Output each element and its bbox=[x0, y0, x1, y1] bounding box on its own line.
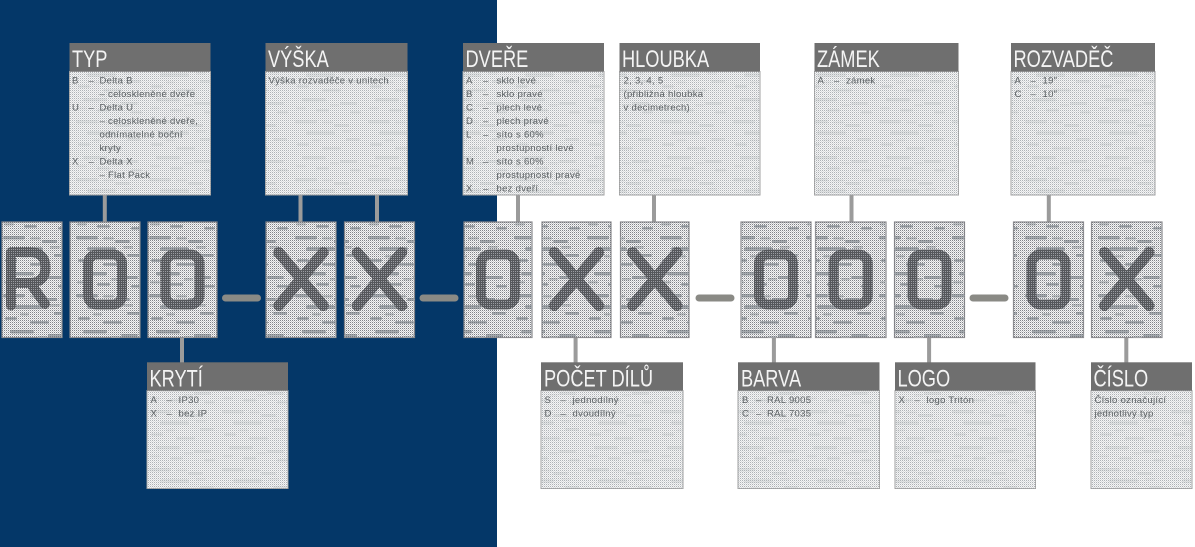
svg-text:D: D bbox=[545, 409, 552, 420]
svg-text:X: X bbox=[899, 395, 906, 406]
svg-text:plech pravé: plech pravé bbox=[497, 116, 549, 127]
svg-text:–: – bbox=[167, 395, 173, 406]
svg-text:–: – bbox=[561, 409, 567, 420]
svg-text:POČET DÍLŮ: POČET DÍLŮ bbox=[544, 364, 653, 392]
svg-text:VÝŠKA: VÝŠKA bbox=[268, 44, 329, 72]
svg-text:C: C bbox=[742, 409, 749, 420]
svg-text:– Flat Pack: – Flat Pack bbox=[100, 170, 151, 181]
svg-text:L: L bbox=[466, 130, 472, 141]
svg-text:ČÍSLO: ČÍSLO bbox=[1094, 364, 1149, 392]
svg-text:jednodílný: jednodílný bbox=[572, 395, 619, 406]
svg-text:– celoskleněné dveře: – celoskleněné dveře bbox=[100, 89, 196, 100]
svg-text:C: C bbox=[1015, 89, 1022, 100]
svg-text:–: – bbox=[167, 409, 173, 420]
svg-text:U: U bbox=[72, 103, 79, 114]
svg-text:D: D bbox=[466, 116, 473, 127]
svg-text:–: – bbox=[483, 184, 489, 195]
svg-text:RAL 7035: RAL 7035 bbox=[767, 409, 811, 420]
svg-text:sklo pravé: sklo pravé bbox=[497, 89, 543, 100]
svg-text:10″: 10″ bbox=[1043, 89, 1058, 100]
svg-text:A: A bbox=[818, 76, 825, 87]
svg-text:–: – bbox=[483, 157, 489, 168]
svg-text:B: B bbox=[72, 76, 79, 87]
svg-text:–: – bbox=[483, 130, 489, 141]
svg-text:TYP: TYP bbox=[72, 46, 107, 73]
svg-text:plech levé: plech levé bbox=[497, 103, 543, 114]
svg-text:X: X bbox=[72, 157, 79, 168]
svg-text:A: A bbox=[1015, 76, 1022, 87]
svg-text:–: – bbox=[756, 409, 762, 420]
svg-text:IP30: IP30 bbox=[179, 395, 200, 406]
svg-text:2, 3, 4, 5: 2, 3, 4, 5 bbox=[624, 76, 664, 87]
svg-text:Delta X: Delta X bbox=[100, 157, 134, 168]
svg-text:Delta U: Delta U bbox=[100, 103, 134, 114]
svg-text:–: – bbox=[89, 76, 95, 87]
svg-text:–: – bbox=[89, 157, 95, 168]
svg-text:A: A bbox=[466, 76, 473, 87]
svg-text:ROZVADĚČ: ROZVADĚČ bbox=[1014, 44, 1114, 72]
svg-text:RAL 9005: RAL 9005 bbox=[767, 395, 811, 406]
svg-text:v decimetrech): v decimetrech) bbox=[624, 103, 691, 114]
svg-text:prostupností pravé: prostupností pravé bbox=[497, 170, 581, 181]
svg-text:(přibližná hloubka: (přibližná hloubka bbox=[624, 89, 704, 100]
svg-text:–: – bbox=[915, 395, 921, 406]
svg-text:odnímatelné boční: odnímatelné boční bbox=[100, 130, 183, 141]
svg-text:B: B bbox=[466, 89, 473, 100]
svg-text:–: – bbox=[561, 395, 567, 406]
svg-text:HLOUBKA: HLOUBKA bbox=[622, 46, 710, 73]
svg-text:–: – bbox=[1031, 76, 1037, 87]
svg-text:síto s 60%: síto s 60% bbox=[497, 130, 545, 141]
svg-text:Delta B: Delta B bbox=[100, 76, 133, 87]
svg-text:síto s 60%: síto s 60% bbox=[497, 157, 545, 168]
svg-text:kryty: kryty bbox=[100, 143, 122, 154]
svg-text:DVEŘE: DVEŘE bbox=[466, 44, 529, 72]
svg-text:prostupností levé: prostupností levé bbox=[497, 143, 574, 154]
svg-text:X: X bbox=[466, 184, 473, 195]
svg-text:Výška rozvaděče v unitech: Výška rozvaděče v unitech bbox=[269, 76, 390, 87]
svg-text:–: – bbox=[483, 76, 489, 87]
svg-text:X: X bbox=[151, 409, 158, 420]
svg-text:zámek: zámek bbox=[846, 76, 875, 87]
svg-text:jednotlivý typ: jednotlivý typ bbox=[1094, 409, 1154, 420]
svg-text:A: A bbox=[151, 395, 158, 406]
svg-text:Číslo označující: Číslo označující bbox=[1095, 395, 1167, 406]
svg-text:BARVA: BARVA bbox=[741, 365, 802, 392]
svg-text:sklo levé: sklo levé bbox=[497, 76, 537, 87]
svg-text:ZÁMEK: ZÁMEK bbox=[817, 44, 880, 72]
svg-text:bez IP: bez IP bbox=[179, 409, 208, 420]
svg-text:dvoudílný: dvoudílný bbox=[573, 409, 616, 420]
svg-text:M: M bbox=[466, 157, 474, 168]
svg-text:–: – bbox=[89, 103, 95, 114]
svg-text:– celoskleněné dveře,: – celoskleněné dveře, bbox=[100, 116, 199, 127]
svg-text:–: – bbox=[756, 395, 762, 406]
svg-text:C: C bbox=[466, 103, 473, 114]
svg-text:KRYTÍ: KRYTÍ bbox=[150, 364, 203, 392]
svg-text:–: – bbox=[483, 89, 489, 100]
svg-text:logo Tritón: logo Tritón bbox=[927, 395, 975, 406]
svg-text:B: B bbox=[742, 395, 749, 406]
svg-text:–: – bbox=[1031, 89, 1037, 100]
svg-text:LOGO: LOGO bbox=[898, 365, 951, 392]
svg-text:–: – bbox=[834, 76, 840, 87]
svg-text:19″: 19″ bbox=[1043, 76, 1058, 87]
svg-text:–: – bbox=[483, 103, 489, 114]
svg-text:–: – bbox=[483, 116, 489, 127]
svg-text:bez dveří: bez dveří bbox=[497, 184, 539, 195]
svg-text:S: S bbox=[545, 395, 552, 406]
